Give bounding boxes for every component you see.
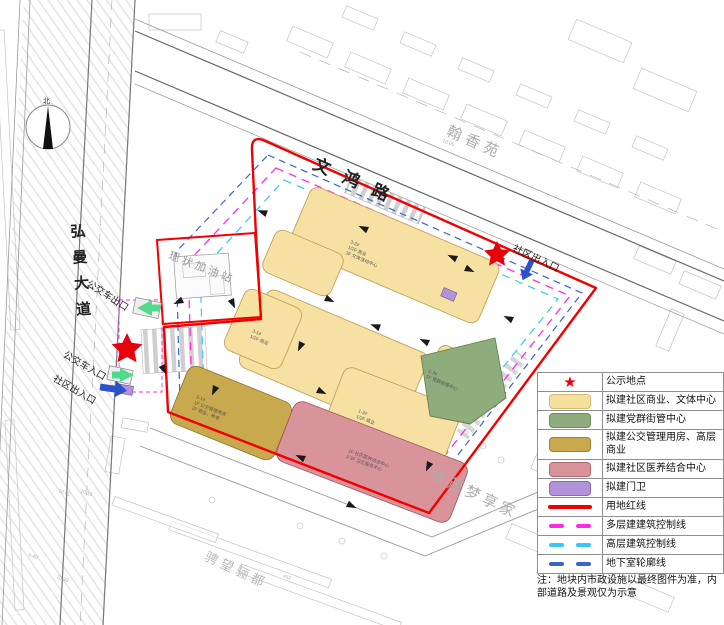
legend-row-gatehouse: 拟建门卫 (538, 479, 723, 498)
purple-swatch (549, 481, 591, 496)
compass-north-label: 北 (43, 97, 50, 105)
cyan-dash-swatch (549, 543, 591, 547)
legend-row-medical-care: 拟建社区医养结合中心 (538, 460, 723, 479)
green-swatch (549, 413, 591, 428)
legend-row-red-line: 用地红线 (538, 498, 723, 517)
legend-row-party-center: 拟建党群街管中心 (538, 411, 723, 430)
bus-exit-bay (133, 297, 162, 318)
legend-label: 用地红线 (603, 499, 649, 516)
legend-row-multi-storey-control: 多层建建筑控制线 (538, 517, 723, 536)
legend: ★ 公示地点 拟建社区商业、文体中心 拟建党群街管中心 拟建公交管理用房、高层商… (537, 372, 724, 574)
legend-label: 拟建党群街管中心 (603, 412, 689, 429)
legend-label: 拟建社区商业、文体中心 (603, 393, 719, 410)
legend-label: 公示地点 (603, 374, 649, 391)
red-line-swatch (548, 505, 592, 509)
left-road (0, 0, 136, 625)
pink-swatch (549, 462, 591, 477)
khaki-swatch (549, 437, 591, 452)
legend-row-highrise-control: 高层建筑控制线 (538, 536, 723, 555)
legend-label: 拟建公交管理用房、高层商业 (603, 430, 723, 459)
yellow-swatch (549, 394, 591, 409)
legend-row-commercial-culture: 拟建社区商业、文体中心 (538, 392, 723, 411)
legend-label: 高层建筑控制线 (603, 537, 679, 554)
legend-label: 拟建门卫 (603, 480, 649, 497)
legend-row-bus-management: 拟建公交管理用房、高层商业 (538, 430, 723, 460)
legend-label: 拟建社区医养结合中心 (603, 461, 709, 478)
magenta-dash-swatch (549, 524, 591, 528)
legend-label: 地下室轮廓线 (603, 556, 669, 573)
legend-row-basement-outline: 地下室轮廓线 (538, 555, 723, 573)
site-plan-page: 北 3-2# 1/2F 商业 3F 文体活动中心 3-1# 1/2F 商业 1-… (0, 0, 724, 625)
legend-note: 注：地块内市政设施以最终图件为准，内部道路及景观仅为示意 (537, 574, 724, 600)
star-icon: ★ (563, 375, 576, 390)
legend-row-public-notice: ★ 公示地点 (538, 373, 723, 392)
legend-label: 多层建建筑控制线 (603, 518, 689, 535)
blue-dash-swatch (549, 562, 591, 566)
